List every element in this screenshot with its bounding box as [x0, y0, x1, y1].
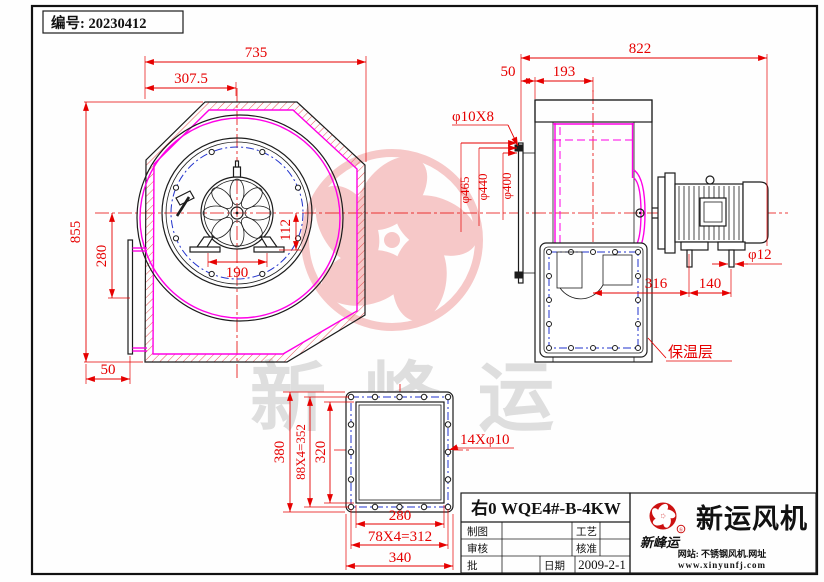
foot-stud-2	[729, 250, 734, 267]
dim-bolt-note-inlet: φ10X8	[452, 109, 494, 125]
ratify-label: 批	[467, 559, 478, 572]
dim-190: 190	[226, 265, 249, 281]
dim-280-front: 280	[94, 245, 110, 268]
motor-foot-2	[718, 242, 745, 250]
motor-flange-2	[665, 173, 675, 253]
dim-phi440: φ440	[475, 173, 490, 200]
motor-eyebolt	[706, 176, 714, 184]
company-name: 新运风机	[696, 503, 808, 534]
dim-855: 855	[68, 221, 84, 244]
title-block: 右0 WQE4#-B-4KW 制图 工艺 审核 核准 批 日期 2009-2-1	[461, 493, 630, 573]
brand-box: ® 新峰运 新运风机 网站: 不锈钢风机.网址 www.xinyunfj.com	[630, 493, 816, 573]
drawing-title: 右0 WQE4#-B-4KW	[471, 498, 621, 518]
flange-outer	[346, 392, 453, 512]
dim-307-5: 307.5	[174, 71, 208, 87]
dim-140: 140	[699, 276, 722, 292]
brand-script-name: 新峰运	[640, 535, 681, 550]
drawing-page: R 新峰运 编号: 20230412	[0, 0, 824, 582]
dim-78x4: 78X4=312	[368, 529, 432, 545]
housing-top-wall	[535, 100, 652, 122]
date-label: 日期	[544, 560, 565, 572]
side-view: 822 50 193 φ10X8 φ465 φ440 φ400 φ12	[452, 41, 782, 362]
dim-88x4: 88X4=352	[293, 424, 308, 480]
side-inlet-flange	[519, 143, 524, 283]
watermark-hub	[384, 232, 400, 248]
motor-flange-1	[658, 177, 665, 249]
handle	[176, 191, 194, 216]
outlet-box	[540, 243, 647, 357]
inlet-flange-plate	[128, 240, 133, 354]
process-label: 工艺	[576, 526, 597, 538]
date-value: 2009-2-1	[578, 557, 626, 572]
checked-label: 审核	[467, 542, 488, 555]
foot-stud-1	[687, 250, 692, 267]
dim-50-front: 50	[101, 362, 116, 378]
dim-14xphi10: 14Xφ10	[460, 432, 510, 448]
dim-316: 316	[645, 276, 668, 292]
dim-phi465: φ465	[457, 176, 472, 203]
dim-735: 735	[245, 45, 268, 61]
dim-340: 340	[389, 550, 412, 566]
insulation-label: 保温层	[668, 344, 713, 361]
dim-phi12: φ12	[748, 247, 772, 263]
serial-label: 编号: 20230412	[51, 14, 146, 32]
dim-380: 380	[272, 441, 288, 464]
serial-box: 编号: 20230412	[43, 11, 183, 33]
dim-280-flange: 280	[389, 508, 412, 524]
dim-phi400: φ400	[499, 172, 514, 199]
website-line1: 网站: 不锈钢风机.网址	[678, 548, 767, 559]
drafted-label: 制图	[467, 525, 488, 538]
dim-822: 822	[629, 41, 652, 57]
approved-label: 核准	[576, 542, 597, 555]
dim-193: 193	[553, 64, 576, 80]
motor-end-cap	[743, 182, 768, 243]
brand-registered-letter: ®	[679, 527, 683, 534]
grease-fitting	[234, 167, 241, 177]
motor-foot-1	[681, 242, 708, 250]
cad-drawing: R 新峰运 编号: 20230412	[0, 0, 824, 582]
dim-320: 320	[313, 441, 329, 464]
dim-112: 112	[278, 219, 294, 241]
website-line2: www.xinyunfj.com	[678, 560, 766, 570]
dim-50-side: 50	[501, 64, 516, 80]
inlet-bolt-bottom	[515, 272, 524, 279]
